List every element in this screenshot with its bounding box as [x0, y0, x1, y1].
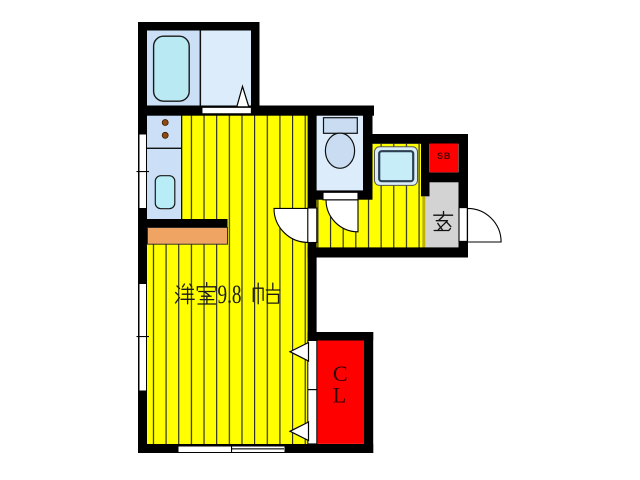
- svg-text:SB: SB: [437, 151, 451, 161]
- svg-text:L: L: [333, 383, 346, 408]
- svg-text:9.8: 9.8: [218, 280, 242, 309]
